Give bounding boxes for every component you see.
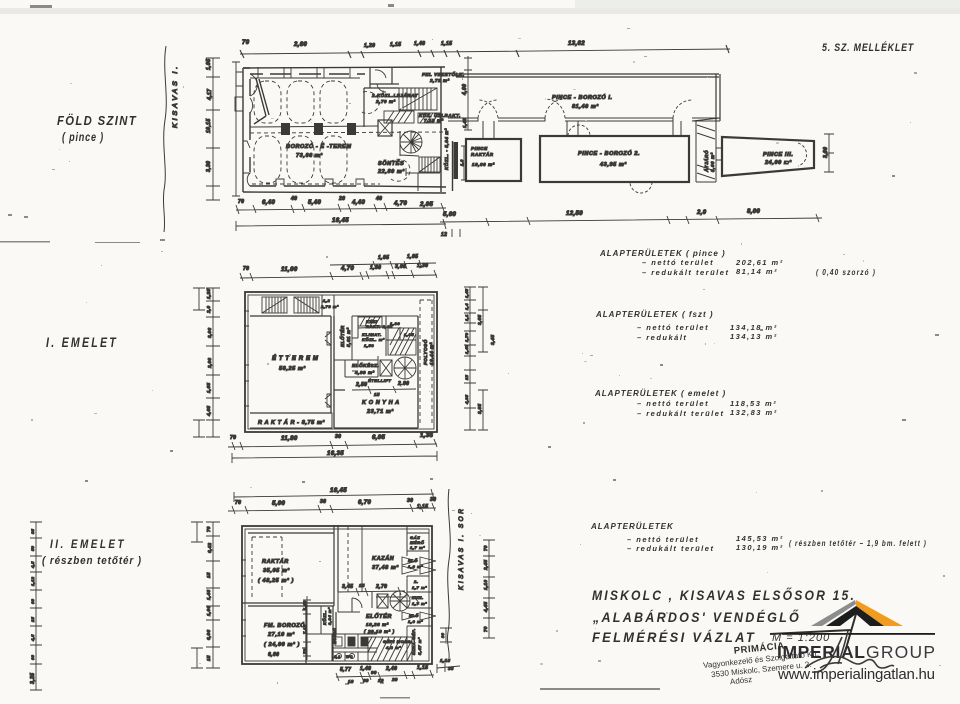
svg-text:– nettó terület: – nettó terület xyxy=(627,535,699,544)
svg-text:ELŐ: ELŐ xyxy=(409,613,419,618)
svg-text:11,00: 11,00 xyxy=(281,267,298,273)
svg-text:GÉPI MOZG.: GÉPI MOZG. xyxy=(383,639,413,644)
svg-text:( részben tetőtér – 1,9 bm. fe: ( részben tetőtér – 1,9 bm. felett ) xyxy=(789,538,927,548)
svg-text:KÖZL. m²: KÖZL. m² xyxy=(362,337,385,342)
svg-text:ALAPTERÜLETEK ( pince ): ALAPTERÜLETEK ( pince ) xyxy=(599,249,726,258)
svg-text:202,61 m²: 202,61 m² xyxy=(735,258,784,267)
svg-text:– redukált terület: – redukált terület xyxy=(627,544,714,553)
svg-text:( pince ): ( pince ) xyxy=(62,132,104,144)
svg-text:145,53 m²: 145,53 m² xyxy=(736,534,784,543)
svg-text:1,40: 1,40 xyxy=(360,666,371,672)
svg-text:6,40: 6,40 xyxy=(262,200,276,206)
svg-text:1,4: 1,4 xyxy=(464,303,469,310)
svg-text:90: 90 xyxy=(440,632,445,638)
svg-text:38: 38 xyxy=(448,666,454,671)
svg-text:3,65: 3,65 xyxy=(477,315,482,325)
svg-text:ALAPTERÜLETEK ( fszt ): ALAPTERÜLETEK ( fszt ) xyxy=(595,310,714,319)
svg-text:2,45: 2,45 xyxy=(483,560,488,571)
svg-text:16,45: 16,45 xyxy=(332,218,349,224)
svg-text:KÖZL. - 5,84 m²: KÖZL. - 5,84 m² xyxy=(443,128,449,170)
svg-text:5,47 m²: 5,47 m² xyxy=(417,637,422,655)
svg-text:I. EMELET: I. EMELET xyxy=(46,334,118,350)
svg-text:ZUH.: ZUH. xyxy=(411,595,424,600)
svg-text:ÁTJÁRÓ: ÁTJÁRÓ xyxy=(703,150,709,173)
svg-text:56,25 m²: 56,25 m² xyxy=(279,365,306,372)
svg-text:20: 20 xyxy=(391,677,398,682)
svg-text:5. SZ. MELLÉKLET: 5. SZ. MELLÉKLET xyxy=(822,41,914,54)
svg-text:4,17: 4,17 xyxy=(207,89,213,101)
svg-text:18,26 m²: 18,26 m² xyxy=(366,622,389,627)
svg-text:1,30: 1,30 xyxy=(370,265,381,271)
svg-text:5,00: 5,00 xyxy=(272,501,286,507)
svg-text:1,35: 1,35 xyxy=(420,433,434,439)
svg-text:35,05 m²: 35,05 m² xyxy=(263,567,290,574)
svg-text:118,53 m²: 118,53 m² xyxy=(730,399,777,408)
svg-text:10,15: 10,15 xyxy=(206,118,212,133)
svg-text:5,77: 5,77 xyxy=(340,667,351,673)
svg-text:1,50: 1,50 xyxy=(364,343,374,348)
svg-text:1,15: 1,15 xyxy=(441,41,452,47)
svg-text:3,34 m²: 3,34 m² xyxy=(327,607,332,625)
svg-text:SÖNTÉS: SÖNTÉS xyxy=(378,159,404,167)
svg-text:15: 15 xyxy=(206,655,211,661)
svg-text:1,15: 1,15 xyxy=(440,658,450,663)
svg-text:1,06: 1,06 xyxy=(206,606,211,616)
svg-text:1,0: 1,0 xyxy=(459,159,464,166)
svg-text:2.: 2. xyxy=(413,579,419,584)
svg-text:2,60: 2,60 xyxy=(293,42,308,48)
svg-text:ELŐTÉR: ELŐTÉR xyxy=(366,612,392,620)
svg-text:7,15 m²: 7,15 m² xyxy=(424,118,444,123)
svg-text:2,0: 2,0 xyxy=(696,210,707,216)
svg-text:1,05: 1,05 xyxy=(378,255,389,261)
svg-text:90: 90 xyxy=(371,670,377,675)
svg-text:2,08: 2,08 xyxy=(207,358,212,369)
svg-text:1,05: 1,05 xyxy=(206,59,212,70)
svg-text:( 48,25 m² ): ( 48,25 m² ) xyxy=(258,577,294,584)
svg-text:20: 20 xyxy=(338,196,345,202)
svg-text:50: 50 xyxy=(30,545,35,551)
svg-text:4,40: 4,40 xyxy=(351,200,366,206)
svg-text:134,13 m²: 134,13 m² xyxy=(730,332,778,341)
svg-text:130,19 m²: 130,19 m² xyxy=(736,543,784,552)
svg-text:RAKTÁR: RAKTÁR xyxy=(262,558,289,565)
svg-text:16,35: 16,35 xyxy=(327,451,344,457)
svg-text:2,70 m²: 2,70 m² xyxy=(375,99,396,104)
svg-text:3,06: 3,06 xyxy=(207,328,212,338)
svg-text:ALAPTERÜLETEK ( emelet ): ALAPTERÜLETEK ( emelet ) xyxy=(594,389,726,398)
svg-text:10,60 m²: 10,60 m² xyxy=(472,162,495,167)
svg-text:30: 30 xyxy=(407,498,413,504)
svg-text:MISKOLC , KISAVAS ELSŐSOR 15: MISKOLC , KISAVAS ELSŐSOR 15. xyxy=(592,586,856,603)
svg-text:11,80: 11,80 xyxy=(281,436,298,442)
svg-text:6,05: 6,05 xyxy=(372,435,386,441)
svg-text:MOSDÓ: MOSDÓ xyxy=(332,628,337,644)
svg-text:4,5: 4,5 xyxy=(30,634,35,642)
svg-text:1,65: 1,65 xyxy=(206,383,211,393)
svg-text:40: 40 xyxy=(290,196,297,202)
svg-text:1,1: 1,1 xyxy=(464,314,469,321)
svg-text:– redukált terület: – redukált terület xyxy=(637,409,724,418)
svg-text:15: 15 xyxy=(464,374,469,380)
svg-text:( 24,00 m² ): ( 24,00 m² ) xyxy=(264,641,300,648)
svg-text:– redukált terület: – redukált terület xyxy=(642,268,729,277)
svg-text:1,45: 1,45 xyxy=(464,344,469,354)
svg-text:– nettó terület: – nettó terület xyxy=(637,323,709,332)
svg-text:15: 15 xyxy=(359,583,365,588)
svg-text:37,48 m²: 37,48 m² xyxy=(372,564,399,571)
svg-text:KISAVAS I. SOR: KISAVAS I. SOR xyxy=(458,507,465,590)
svg-text:3,45: 3,45 xyxy=(342,584,353,590)
svg-text:1,15: 1,15 xyxy=(417,665,428,671)
svg-text:4,45: 4,45 xyxy=(483,602,488,613)
svg-text:1,10: 1,10 xyxy=(483,580,488,590)
svg-text:WC: WC xyxy=(346,655,353,659)
svg-text:2,40: 2,40 xyxy=(385,666,397,672)
svg-text:40: 40 xyxy=(375,196,382,202)
svg-text:1,45: 1,45 xyxy=(464,288,469,298)
svg-text:1,40: 1,40 xyxy=(414,41,425,47)
svg-text:15: 15 xyxy=(30,616,35,622)
svg-text:– nettó terület: – nettó terület xyxy=(642,258,714,267)
svg-text:1,05: 1,05 xyxy=(407,254,418,260)
svg-text:4,8 m²: 4,8 m² xyxy=(385,645,401,650)
svg-text:1,6 m²: 1,6 m² xyxy=(408,619,423,624)
svg-text:1,70: 1,70 xyxy=(464,332,469,342)
svg-text:PINCE III.: PINCE III. xyxy=(763,152,793,158)
svg-text:81,40 m²: 81,40 m² xyxy=(572,103,599,110)
svg-text:35: 35 xyxy=(30,528,35,534)
svg-text:60: 60 xyxy=(30,654,35,660)
svg-text:1,25: 1,25 xyxy=(206,289,211,299)
svg-text:RAKTÁR: RAKTÁR xyxy=(471,151,494,157)
svg-text:70: 70 xyxy=(206,526,211,532)
svg-text:1,15: 1,15 xyxy=(417,504,428,510)
svg-text:PINCE - BOROZÓ 2.: PINCE - BOROZÓ 2. xyxy=(578,150,640,157)
svg-text:10,44 m²: 10,44 m² xyxy=(429,342,434,365)
svg-text:2.KÖZL.LEJÁRAT: 2.KÖZL.LEJÁRAT xyxy=(371,92,419,98)
svg-text:2,76 m²: 2,76 m² xyxy=(320,304,339,309)
svg-text:8,00: 8,00 xyxy=(747,209,761,215)
svg-text:GROUP: GROUP xyxy=(866,642,935,662)
svg-text:3,45: 3,45 xyxy=(490,335,495,345)
svg-text:FOLYOSÓ: FOLYOSÓ xyxy=(422,339,428,365)
svg-text:– redukált: – redukált xyxy=(637,333,687,342)
svg-text:PINCE: PINCE xyxy=(471,146,488,151)
svg-text:23,71 m²: 23,71 m² xyxy=(366,408,394,415)
svg-text:4,35: 4,35 xyxy=(464,394,469,405)
svg-text:5,40: 5,40 xyxy=(308,200,322,206)
svg-text:1,2: 1,2 xyxy=(323,298,331,303)
svg-text:4,70: 4,70 xyxy=(393,201,408,207)
svg-text:2,05: 2,05 xyxy=(419,202,434,208)
svg-text:4,5: 4,5 xyxy=(30,561,35,569)
svg-text:60: 60 xyxy=(363,678,369,683)
svg-text:10: 10 xyxy=(378,678,384,683)
svg-text:3,25: 3,25 xyxy=(30,673,36,684)
svg-text:1,12: 1,12 xyxy=(30,576,35,586)
svg-text:BOROZÓ - É -TEREM: BOROZÓ - É -TEREM xyxy=(286,142,352,150)
svg-text:ELŐTÉR: ELŐTÉR xyxy=(338,325,345,347)
svg-text:5,61 m²: 5,61 m² xyxy=(346,327,351,347)
svg-text:1,35: 1,35 xyxy=(404,332,414,337)
svg-text:27,10 m²: 27,10 m² xyxy=(267,631,295,638)
svg-text:15: 15 xyxy=(374,392,380,397)
svg-text:( 0,40 szorzó ): ( 0,40 szorzó ) xyxy=(816,267,876,277)
svg-text:3,00: 3,00 xyxy=(823,147,829,158)
svg-text:2,70: 2,70 xyxy=(375,584,387,590)
svg-text:81,14 m²: 81,14 m² xyxy=(736,267,778,276)
svg-text:30: 30 xyxy=(320,499,326,505)
svg-text:30: 30 xyxy=(430,497,436,503)
svg-text:73,66 m²: 73,66 m² xyxy=(296,152,323,159)
svg-text:12: 12 xyxy=(441,232,447,238)
svg-text:16,45: 16,45 xyxy=(330,488,347,494)
svg-text:É T T E R E M: É T T E R E M xyxy=(272,354,319,362)
svg-text:1,20: 1,20 xyxy=(364,43,375,49)
svg-text:FM. BOROZÓ: FM. BOROZÓ xyxy=(264,622,305,629)
svg-text:„ALABÁRDOS' VENDÉGLŐ: „ALABÁRDOS' VENDÉGLŐ xyxy=(592,608,801,625)
svg-text:2,90: 2,90 xyxy=(397,381,409,387)
svg-text:1,6 m²: 1,6 m² xyxy=(408,564,423,569)
svg-text:www.imperialingatlan.hu: www.imperialingatlan.hu xyxy=(777,666,935,683)
svg-text:1,7 m²: 1,7 m² xyxy=(412,601,427,606)
svg-text:10: 10 xyxy=(348,679,354,684)
svg-text:ÉTELLIFT: ÉTELLIFT xyxy=(368,378,391,383)
svg-text:13,02: 13,02 xyxy=(568,41,585,47)
svg-text:ELŐ: ELŐ xyxy=(408,558,418,563)
svg-text:70: 70 xyxy=(483,626,488,632)
svg-text:22,80 m²: 22,80 m² xyxy=(377,168,405,175)
svg-text:1,15: 1,15 xyxy=(390,42,401,48)
svg-text:1,30: 1,30 xyxy=(390,321,400,326)
svg-text:II. EMELET: II. EMELET xyxy=(50,537,126,551)
svg-text:12,50: 12,50 xyxy=(566,211,583,217)
svg-text:( 20,10 m² ): ( 20,10 m² ) xyxy=(364,629,395,634)
svg-text:ELŐKÉSZ.: ELŐKÉSZ. xyxy=(352,361,379,368)
svg-text:4,70: 4,70 xyxy=(340,266,355,272)
svg-text:15: 15 xyxy=(206,572,211,578)
svg-text:132,83 m²: 132,83 m² xyxy=(730,408,778,417)
svg-text:RAKT. 2,62: RAKT. 2,62 xyxy=(366,324,393,329)
svg-text:K O N Y H A: K O N Y H A xyxy=(362,400,400,406)
svg-text:3,30: 3,30 xyxy=(206,161,212,172)
svg-text:– nettó terület: – nettó terület xyxy=(637,399,709,408)
svg-text:43,95 m²: 43,95 m² xyxy=(599,161,627,168)
svg-text:70: 70 xyxy=(235,500,241,506)
svg-text:6,42: 6,42 xyxy=(207,543,212,553)
svg-text:8,00 m²: 8,00 m² xyxy=(710,152,715,172)
svg-text:6,96: 6,96 xyxy=(206,630,211,640)
svg-text:PINCE - BOROZÓ I.: PINCE - BOROZÓ I. xyxy=(552,94,613,101)
svg-text:1,2: 1,2 xyxy=(334,655,341,659)
svg-text:4,99 m²: 4,99 m² xyxy=(354,370,375,375)
svg-text:3,85: 3,85 xyxy=(477,404,482,414)
svg-text:1,45: 1,45 xyxy=(462,118,467,128)
svg-text:70: 70 xyxy=(242,40,250,46)
svg-text:70: 70 xyxy=(243,266,249,272)
svg-text:( részben tetőtér ): ( részben tetőtér ) xyxy=(42,555,142,567)
svg-text:FELMÉRÉSI VÁZLAT: FELMÉRÉSI VÁZLAT xyxy=(592,629,756,645)
svg-text:70: 70 xyxy=(483,545,488,551)
svg-text:6,00: 6,00 xyxy=(268,652,279,658)
svg-text:2,0: 2,0 xyxy=(206,305,211,314)
svg-text:70: 70 xyxy=(230,435,236,441)
svg-text:3,05: 3,05 xyxy=(395,264,406,270)
svg-text:1,30: 1,30 xyxy=(417,263,428,269)
svg-text:70: 70 xyxy=(238,199,244,205)
svg-text:FÖLD SZINT: FÖLD SZINT xyxy=(57,113,137,128)
svg-text:2,50: 2,50 xyxy=(355,382,367,388)
svg-text:4,65: 4,65 xyxy=(206,406,211,417)
svg-text:134,18 m²: 134,18 m² xyxy=(730,323,778,332)
svg-text:1,46: 1,46 xyxy=(206,590,211,600)
svg-text:6,70: 6,70 xyxy=(358,500,372,506)
svg-text:1,7 m²: 1,7 m² xyxy=(412,585,427,590)
svg-text:KISAVAS I.: KISAVAS I. xyxy=(172,64,179,128)
svg-text:60: 60 xyxy=(30,598,35,604)
svg-text:R A K T Á R - 8,75 m²: R A K T Á R - 8,75 m² xyxy=(258,419,325,426)
svg-text:30: 30 xyxy=(335,434,341,440)
svg-text:1,7 m²: 1,7 m² xyxy=(410,545,425,550)
svg-text:4,00: 4,00 xyxy=(462,84,468,96)
svg-text:2,71 m²: 2,71 m² xyxy=(429,78,450,83)
svg-text:ALAPTERÜLETEK: ALAPTERÜLETEK xyxy=(590,522,674,531)
svg-text:5,60: 5,60 xyxy=(443,212,457,218)
svg-text:KAZÁN: KAZÁN xyxy=(372,555,395,562)
